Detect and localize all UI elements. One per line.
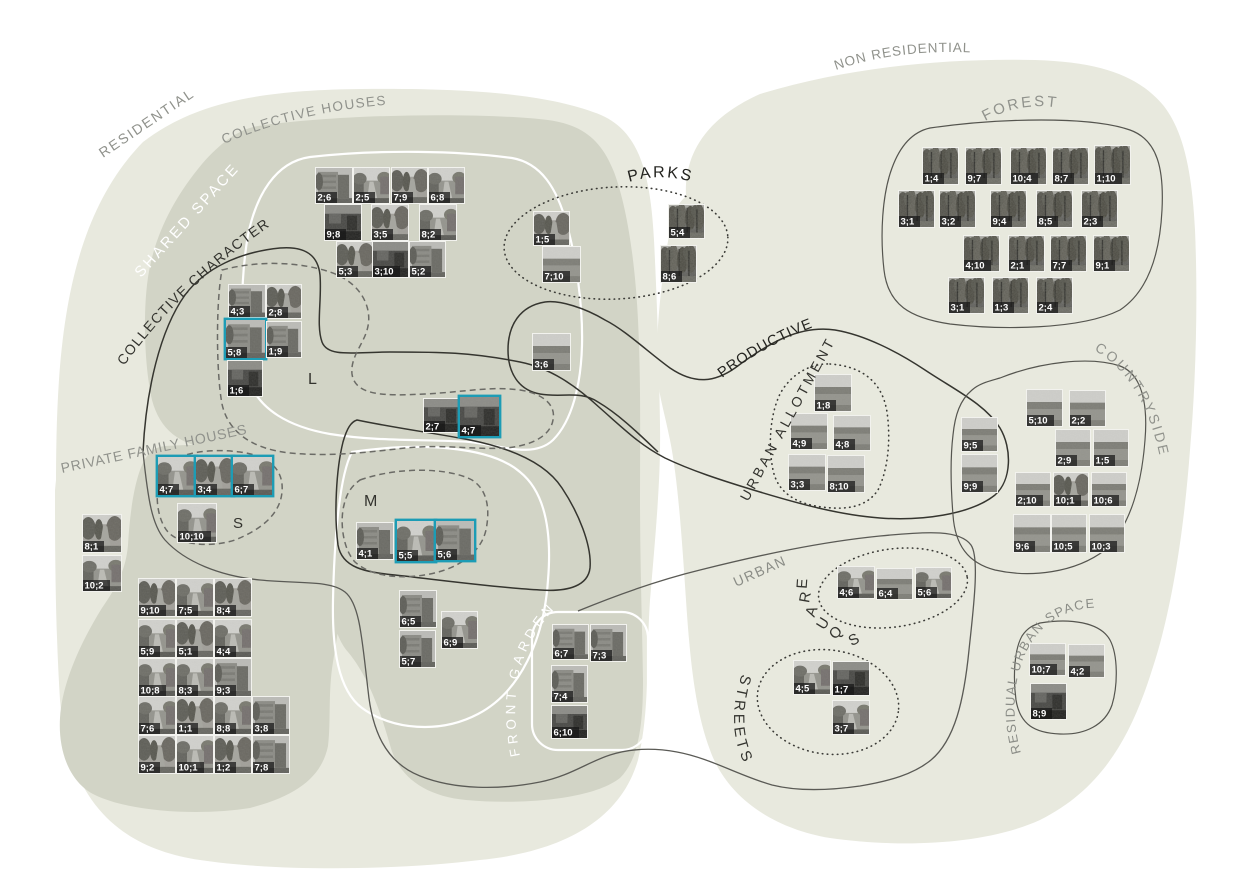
svg-text:1;1: 1;1	[179, 724, 193, 735]
svg-text:6;10: 6;10	[554, 728, 573, 739]
svg-text:2;8: 2;8	[269, 308, 283, 319]
svg-text:4;7: 4;7	[462, 426, 476, 437]
svg-text:2;1: 2;1	[1011, 261, 1025, 272]
svg-text:5;6: 5;6	[918, 588, 932, 599]
svg-text:10;7: 10;7	[1032, 665, 1051, 676]
svg-text:3;8: 3;8	[255, 724, 269, 735]
svg-text:9;7: 9;7	[968, 174, 982, 185]
svg-text:3;4: 3;4	[198, 485, 212, 496]
svg-text:2;10: 2;10	[1018, 496, 1037, 507]
svg-text:5;7: 5;7	[402, 657, 416, 668]
svg-text:4;7: 4;7	[160, 485, 174, 496]
svg-text:1;10: 1;10	[1097, 174, 1116, 185]
svg-text:3;3: 3;3	[791, 480, 805, 491]
svg-text:7;5: 7;5	[179, 606, 193, 617]
svg-text:4;3: 4;3	[231, 307, 245, 318]
svg-text:10;6: 10;6	[1094, 496, 1113, 507]
svg-text:2;9: 2;9	[1058, 456, 1072, 467]
svg-text:L: L	[308, 371, 317, 388]
svg-text:6;5: 6;5	[402, 617, 416, 628]
svg-text:6;7: 6;7	[555, 649, 569, 660]
svg-text:9;4: 9;4	[993, 217, 1007, 228]
svg-text:2;7: 2;7	[426, 422, 440, 433]
svg-text:PARKS: PARKS	[626, 164, 695, 186]
svg-text:5;5: 5;5	[399, 551, 413, 562]
svg-text:7;3: 7;3	[593, 651, 607, 662]
svg-text:1;8: 1;8	[817, 401, 831, 412]
svg-text:1;7: 1;7	[835, 685, 849, 696]
svg-text:4;5: 4;5	[796, 684, 810, 695]
svg-text:5;8: 5;8	[228, 348, 242, 359]
svg-text:10;2: 10;2	[85, 581, 104, 592]
svg-text:7;7: 7;7	[1053, 261, 1067, 272]
svg-text:8;5: 8;5	[1039, 217, 1053, 228]
svg-text:4;8: 4;8	[836, 440, 850, 451]
svg-text:10;1: 10;1	[1056, 496, 1076, 507]
svg-text:1;3: 1;3	[995, 303, 1009, 314]
svg-text:1;5: 1;5	[536, 235, 550, 246]
svg-text:8;2: 8;2	[422, 230, 436, 241]
svg-text:10;4: 10;4	[1013, 174, 1033, 185]
svg-text:1;5: 1;5	[1096, 456, 1110, 467]
svg-text:10;8: 10;8	[141, 686, 160, 697]
svg-text:6;4: 6;4	[879, 589, 893, 600]
svg-text:9;10: 9;10	[141, 606, 160, 617]
svg-text:4;1: 4;1	[359, 549, 373, 560]
svg-text:8;3: 8;3	[179, 686, 193, 697]
svg-text:9;1: 9;1	[1096, 261, 1110, 272]
svg-text:3;6: 3;6	[535, 360, 549, 371]
svg-text:7;6: 7;6	[141, 724, 155, 735]
svg-text:3;2: 3;2	[942, 217, 956, 228]
svg-text:9;9: 9;9	[964, 482, 978, 493]
svg-text:6;8: 6;8	[431, 193, 445, 204]
svg-text:2;5: 2;5	[356, 193, 370, 204]
svg-text:1;2: 1;2	[217, 763, 231, 774]
svg-text:E: E	[794, 578, 812, 589]
svg-text:9;2: 9;2	[141, 763, 155, 774]
svg-text:5;3: 5;3	[339, 267, 353, 278]
svg-text:8;4: 8;4	[217, 606, 231, 617]
svg-text:2;4: 2;4	[1039, 303, 1053, 314]
svg-text:10;5: 10;5	[1054, 542, 1074, 553]
svg-text:7;9: 7;9	[394, 193, 408, 204]
svg-text:3;1: 3;1	[901, 217, 915, 228]
svg-text:8;1: 8;1	[85, 542, 99, 553]
svg-text:8;10: 8;10	[830, 482, 849, 493]
svg-text:2;2: 2;2	[1072, 416, 1086, 427]
svg-text:9;3: 9;3	[217, 686, 231, 697]
svg-text:5;2: 5;2	[412, 267, 426, 278]
svg-text:8;8: 8;8	[217, 724, 231, 735]
svg-text:5;1: 5;1	[179, 647, 193, 658]
svg-text:3;5: 3;5	[374, 230, 388, 241]
svg-text:1;4: 1;4	[925, 174, 939, 185]
svg-text:8;7: 8;7	[1055, 174, 1069, 185]
svg-text:4;4: 4;4	[217, 647, 231, 658]
svg-text:3;10: 3;10	[375, 267, 394, 278]
svg-text:4;10: 4;10	[966, 261, 985, 272]
svg-text:4;2: 4;2	[1071, 667, 1085, 678]
svg-text:8;6: 8;6	[663, 272, 677, 283]
svg-text:9;5: 9;5	[964, 441, 978, 452]
svg-text:5;10: 5;10	[1029, 416, 1048, 427]
svg-text:2;3: 2;3	[1084, 217, 1098, 228]
svg-text:2;6: 2;6	[318, 193, 332, 204]
svg-text:10;10: 10;10	[180, 532, 204, 543]
svg-text:7;4: 7;4	[554, 692, 568, 703]
svg-text:9;6: 9;6	[1016, 542, 1030, 553]
svg-text:4;6: 4;6	[840, 588, 854, 599]
svg-text:5;9: 5;9	[141, 647, 155, 658]
svg-text:1;6: 1;6	[230, 386, 244, 397]
svg-text:S: S	[233, 515, 243, 532]
svg-text:9;8: 9;8	[327, 230, 341, 241]
svg-text:3;7: 3;7	[835, 724, 849, 735]
svg-text:7;8: 7;8	[255, 763, 269, 774]
svg-text:10;1: 10;1	[179, 763, 199, 774]
svg-text:5;4: 5;4	[671, 228, 685, 239]
svg-text:4;9: 4;9	[793, 439, 807, 450]
svg-text:10;3: 10;3	[1092, 542, 1111, 553]
svg-text:8;9: 8;9	[1033, 709, 1047, 720]
svg-text:7;10: 7;10	[545, 272, 564, 283]
svg-text:6;7: 6;7	[235, 485, 249, 496]
svg-text:5;6: 5;6	[438, 550, 452, 561]
svg-text:1;9: 1;9	[269, 347, 283, 358]
svg-text:6;9: 6;9	[444, 638, 458, 649]
svg-text:3;1: 3;1	[951, 303, 965, 314]
svg-text:M: M	[364, 493, 377, 510]
